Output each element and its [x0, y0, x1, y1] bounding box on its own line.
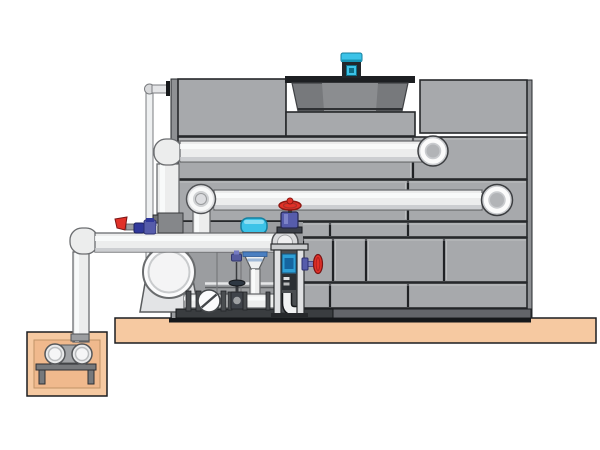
pump-stand-leg — [88, 370, 94, 384]
cooling-tower-diagram — [0, 0, 600, 450]
tower-bottom-bar — [169, 318, 531, 323]
overflow-flange — [166, 81, 170, 96]
drain-lever-red — [115, 217, 127, 230]
fan-motor — [339, 53, 364, 82]
riser-coupling — [71, 334, 89, 341]
manifold-elbow — [70, 228, 98, 254]
control-box — [282, 274, 296, 290]
filter-frame — [271, 244, 308, 317]
fan-cowl-highlight — [322, 83, 378, 111]
motor-base — [339, 78, 364, 82]
sump-pump — [36, 252, 96, 384]
pump-stand-beam — [36, 364, 96, 370]
frame-top-beam — [271, 244, 308, 250]
globe-valve-body — [281, 212, 298, 228]
iso-valve-b — [144, 220, 156, 234]
supply-elbow-left — [154, 139, 182, 165]
check-valve — [198, 290, 220, 312]
illustration-canvas — [0, 0, 600, 450]
top-right-panel — [420, 80, 527, 133]
iso-valve-a — [134, 223, 144, 233]
top-left-panel — [178, 79, 286, 136]
frame-column — [274, 250, 281, 314]
fan-deck-strip — [286, 112, 415, 136]
pump-stand-leg — [39, 370, 45, 384]
trim-fitting — [232, 254, 242, 261]
drop-support-block — [158, 213, 183, 233]
ground — [27, 318, 596, 396]
gate-valve-handwheel — [229, 280, 245, 286]
sump-riser-pipe — [71, 252, 89, 342]
globe-valve — [277, 198, 302, 233]
frame-feet — [271, 313, 308, 317]
fan-assembly — [285, 53, 415, 111]
